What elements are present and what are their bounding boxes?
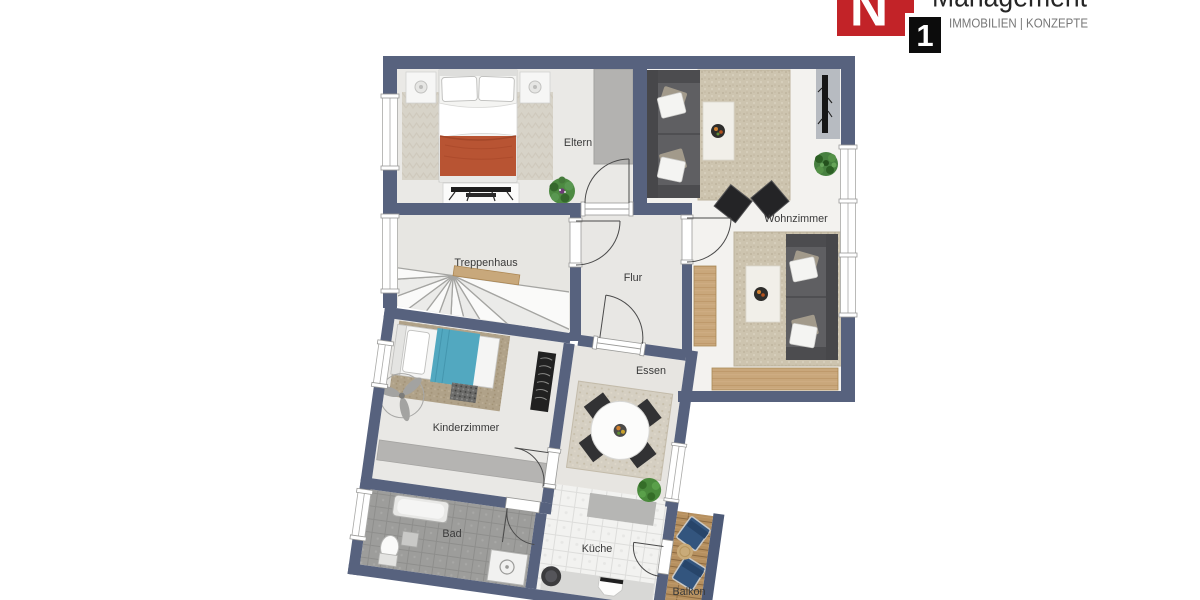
svg-text:Eltern: Eltern	[564, 137, 592, 149]
svg-text:IMMOBILIEN | KONZEPTE: IMMOBILIEN | KONZEPTE	[949, 16, 1088, 31]
svg-text:N: N	[850, 0, 888, 38]
svg-text:1: 1	[916, 18, 933, 53]
svg-text:Essen: Essen	[636, 365, 666, 377]
svg-text:Wohnzimmer: Wohnzimmer	[764, 213, 828, 225]
svg-text:Kinderzimmer: Kinderzimmer	[433, 422, 500, 434]
svg-text:Flur: Flur	[624, 272, 643, 284]
svg-text:Küche: Küche	[582, 543, 613, 555]
svg-text:Management: Management	[932, 0, 1088, 14]
svg-text:Bad: Bad	[442, 528, 461, 540]
svg-text:Balkon: Balkon	[672, 586, 705, 598]
svg-text:Treppenhaus: Treppenhaus	[454, 257, 518, 269]
